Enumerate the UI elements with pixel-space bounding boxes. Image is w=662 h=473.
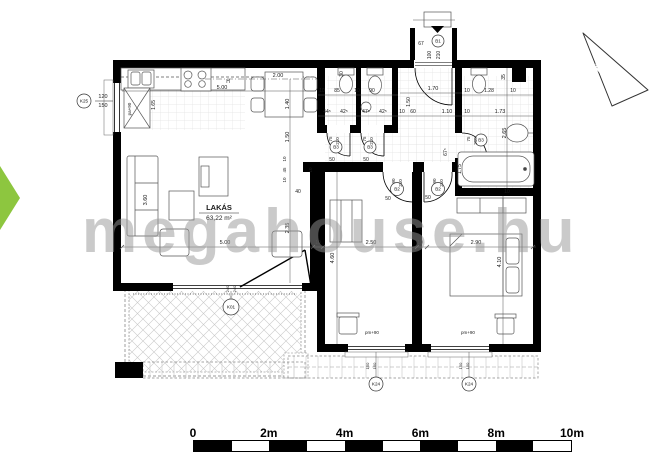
scale-segment	[420, 441, 458, 451]
annotation-text: 3.60	[143, 195, 149, 206]
annotation-text: 10	[315, 240, 321, 246]
annotation-text: 4.10	[497, 257, 503, 268]
annotation-text: 150	[465, 362, 470, 369]
annotation-text: 10	[308, 167, 313, 173]
scale-segment	[345, 441, 383, 451]
annotation-text: 1.10	[442, 109, 453, 115]
annotation-text: 50	[329, 157, 335, 163]
scale-segment	[496, 441, 534, 451]
annotation-text: H	[226, 79, 230, 85]
annotation-text: 67⁵	[443, 148, 449, 156]
north-arrow-icon: É	[583, 33, 648, 106]
annotation-text: 1.50	[285, 132, 291, 143]
annotation-text: pa+90	[127, 102, 132, 115]
ref-circle-label: K01	[227, 305, 236, 310]
annotation-text: 4.60	[330, 253, 336, 264]
annotation-text: 75	[328, 136, 333, 142]
annotation-text: 10	[282, 177, 287, 183]
annotation-text: 1.50	[406, 97, 412, 107]
ref-circle-label: B3	[478, 138, 484, 143]
scale-bar-segments	[193, 440, 572, 452]
annotation-text: 75	[466, 136, 471, 142]
scale-label: 4m	[336, 426, 353, 440]
annotation-text: 210	[473, 137, 478, 145]
annotation-text: 44⁵	[323, 109, 331, 115]
annotation-text: 210	[369, 137, 374, 145]
annotation-text: 240	[232, 285, 237, 292]
annotation-text: 42⁵	[379, 109, 387, 115]
scale-label: 8m	[488, 426, 505, 440]
scale-segment	[232, 441, 270, 451]
annotation-text: 75	[362, 136, 367, 142]
annotation-text: 35	[501, 74, 507, 80]
scale-label: 2m	[260, 426, 277, 440]
annotation-text: 210	[439, 179, 444, 187]
annotation-text: 1.73	[495, 109, 506, 115]
annotation-text: pm+90	[461, 330, 475, 335]
annotation-text: 2.50	[366, 240, 377, 246]
floorplan-page: B1B3B3B3B2B2K01K24K24K25 2.005.00H108510…	[0, 0, 662, 473]
annotation-text: 1.70	[428, 86, 439, 92]
scale-label: 6m	[412, 426, 429, 440]
annotation-text: 150	[458, 362, 463, 369]
annotation-text: 100	[427, 51, 433, 60]
annotation-text: 150	[365, 362, 370, 369]
annotation-text: 10	[282, 156, 287, 162]
annotation-text: 90	[391, 178, 396, 184]
annotation-text: 10	[417, 240, 423, 246]
annotation-text: 50	[363, 157, 369, 163]
scale-segment	[307, 441, 345, 451]
annotation-text: LAKÁS	[206, 203, 232, 212]
annotation-text: 47⁵	[362, 109, 370, 115]
annotation-text: 1.28	[484, 88, 494, 94]
annotation-text: 60	[410, 109, 416, 115]
annotation-text: 63,22 m²	[206, 215, 232, 222]
scale-segment	[269, 441, 307, 451]
annotation-text: 210	[436, 51, 442, 60]
annotation-text: 2.90	[471, 240, 482, 246]
annotation-text: 5.00	[220, 240, 231, 246]
annotation-text: 30	[339, 71, 345, 77]
gallery-prev-arrow[interactable]	[0, 160, 26, 240]
annotation-text: 10	[464, 88, 470, 94]
annotation-text: 120	[98, 94, 107, 100]
annotation-text: 150	[372, 362, 377, 369]
annotation-text: 90	[369, 88, 375, 94]
green-arrow-shape	[0, 166, 20, 230]
annotation-text: 10	[510, 88, 516, 94]
annotation-text: 50	[425, 195, 431, 201]
scale-label: 0	[190, 426, 197, 440]
annotation-text: 10	[319, 88, 325, 94]
annotation-text: 10	[464, 109, 470, 115]
annotation-text: 210	[398, 179, 403, 187]
annotation-text: 2.35	[285, 223, 291, 234]
annotation-text: 45	[282, 167, 287, 173]
scale-bar: 02m4m6m8m10m	[193, 426, 572, 452]
annotation-text: 2.65	[502, 128, 508, 139]
floorplan-drawing: B1B3B3B3B2B2K01K24K24K25 2.005.00H108510…	[0, 0, 662, 473]
scale-label: 10m	[560, 426, 584, 440]
scale-segment	[458, 441, 496, 451]
annotation-text: 10	[504, 189, 510, 195]
scale-segment	[194, 441, 232, 451]
annotation-text: 10	[354, 88, 360, 94]
annotation-text: 150	[98, 103, 107, 109]
ref-circle-label: B1	[435, 39, 441, 44]
annotation-text: 10	[399, 109, 405, 115]
annotation-text: 5.00	[217, 85, 228, 91]
annotation-text: 90	[432, 178, 437, 184]
annotation-text: 85	[334, 88, 340, 94]
annotation-text: 67	[418, 41, 424, 47]
ref-circle-label: K24	[372, 382, 381, 387]
annotation-text: 42⁵	[340, 109, 348, 115]
annotation-text: 2.00	[273, 73, 284, 79]
ref-circle-label: K25	[80, 99, 89, 104]
annotation-text: 50	[385, 196, 391, 202]
ref-circle-label: K24	[465, 382, 474, 387]
annotation-text: 240	[225, 285, 230, 292]
annotation-text: 210	[335, 137, 340, 145]
annotation-text: 1.40	[285, 99, 291, 110]
scale-bar-labels: 02m4m6m8m10m	[193, 426, 572, 439]
annotation-text: pm+90	[365, 330, 379, 335]
scale-segment	[383, 441, 421, 451]
annotation-text: 1.75	[457, 164, 463, 174]
annotation-text: 40	[295, 189, 301, 195]
scale-segment	[533, 441, 571, 451]
annotation-text: 1.65	[151, 100, 157, 110]
